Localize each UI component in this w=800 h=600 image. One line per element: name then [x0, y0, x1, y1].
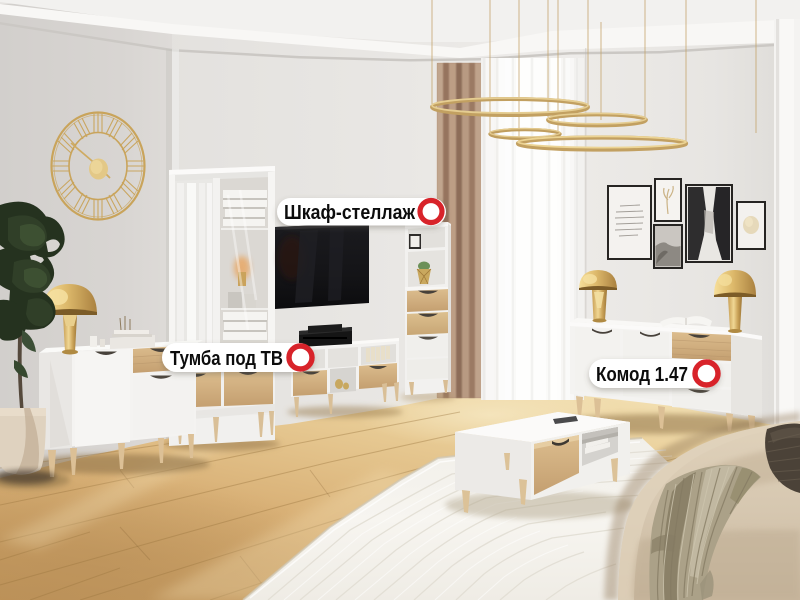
svg-text:Комод 1.47: Комод 1.47: [596, 363, 688, 386]
svg-text:Тумба под ТВ: Тумба под ТВ: [170, 347, 283, 370]
svg-text:Шкаф-стеллаж: Шкаф-стеллаж: [284, 201, 415, 224]
